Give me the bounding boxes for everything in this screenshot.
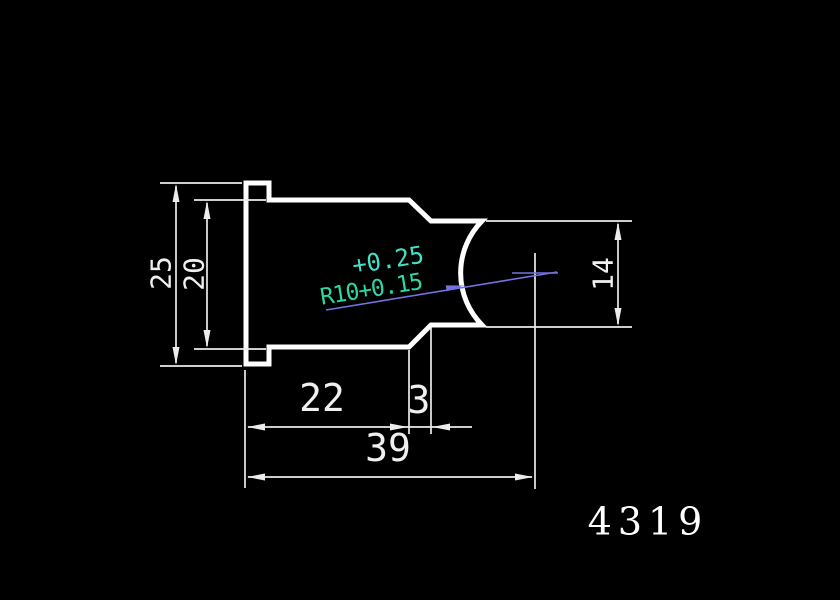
- part-number: 4319: [588, 499, 709, 543]
- dimension-value-25: 25: [145, 256, 178, 290]
- dimension-value-39: 39: [365, 426, 411, 470]
- dimension-value-20: 20: [178, 257, 211, 291]
- drawing-background: [0, 0, 840, 600]
- cad-viewport: 25 20 14 22: [0, 0, 840, 600]
- dimension-value-3: 3: [408, 378, 431, 422]
- dimension-value-14: 14: [587, 257, 620, 291]
- dimension-value-22: 22: [299, 376, 345, 420]
- cad-canvas: 25 20 14 22: [0, 0, 840, 600]
